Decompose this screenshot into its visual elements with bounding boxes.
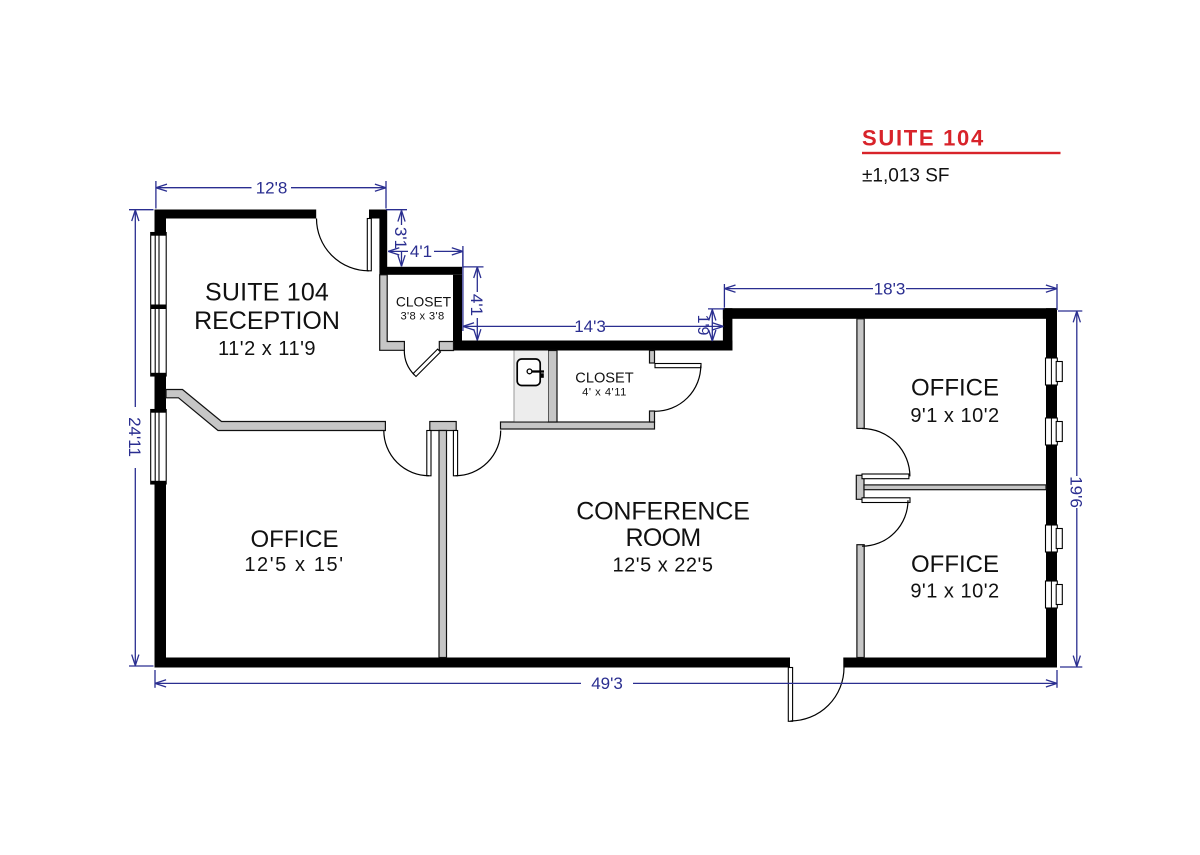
svg-text:4' x 4'11: 4' x 4'11 xyxy=(582,387,627,399)
svg-text:9'1 x 10'2: 9'1 x 10'2 xyxy=(910,405,999,427)
svg-text:12'8: 12'8 xyxy=(256,179,288,198)
svg-text:24'11: 24'11 xyxy=(125,417,144,457)
svg-text:OFFICE: OFFICE xyxy=(911,551,999,578)
svg-text:12'5 x 22'5: 12'5 x 22'5 xyxy=(613,555,714,577)
svg-text:±1,013 SF: ±1,013 SF xyxy=(862,166,950,187)
svg-text:CONFERENCE: CONFERENCE xyxy=(576,498,750,526)
svg-text:9'1 x 10'2: 9'1 x 10'2 xyxy=(910,581,999,603)
svg-text:18'3: 18'3 xyxy=(874,279,906,298)
svg-text:CLOSET: CLOSET xyxy=(396,295,452,310)
svg-text:RECEPTION: RECEPTION xyxy=(194,307,340,335)
svg-text:12'5 x 15': 12'5 x 15' xyxy=(244,554,344,576)
svg-text:3'8 x 3'8: 3'8 x 3'8 xyxy=(400,310,444,322)
svg-text:SUITE 104: SUITE 104 xyxy=(205,279,329,307)
svg-text:3'1: 3'1 xyxy=(391,227,410,249)
svg-text:ROOM: ROOM xyxy=(626,524,701,552)
svg-text:1'9: 1'9 xyxy=(694,315,711,336)
svg-text:SUITE 104: SUITE 104 xyxy=(862,126,985,151)
svg-text:CLOSET: CLOSET xyxy=(575,371,633,387)
svg-text:49'3: 49'3 xyxy=(591,674,623,693)
svg-text:4'1: 4'1 xyxy=(467,294,486,316)
svg-text:19'6: 19'6 xyxy=(1066,476,1085,508)
svg-text:14'3: 14'3 xyxy=(574,317,606,336)
svg-text:11'2 x 11'9: 11'2 x 11'9 xyxy=(218,338,316,360)
svg-text:OFFICE: OFFICE xyxy=(911,375,999,402)
svg-text:OFFICE: OFFICE xyxy=(251,526,339,553)
svg-text:4'1: 4'1 xyxy=(410,242,432,261)
